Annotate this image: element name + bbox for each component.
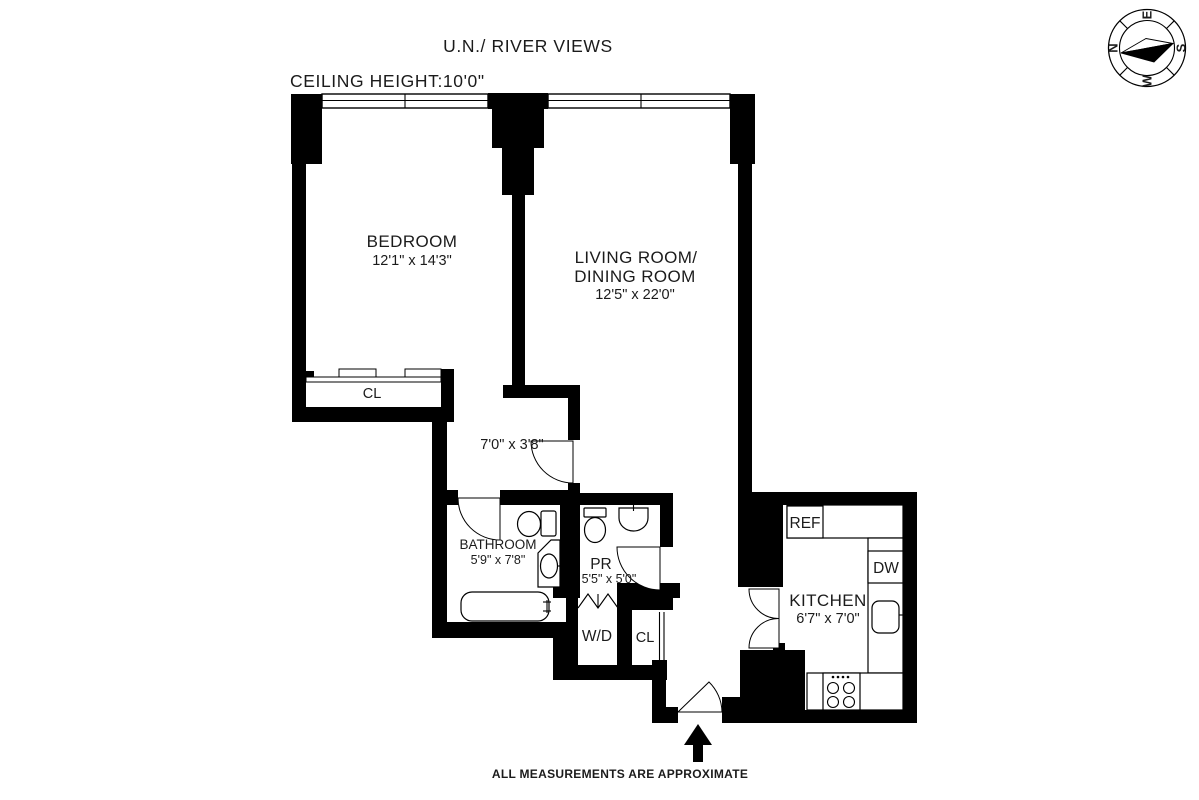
compass-south-label: S xyxy=(1174,43,1189,52)
slider-panel xyxy=(339,369,376,377)
bedroom-dims: 12'1" x 14'3" xyxy=(372,253,452,269)
wall-segment xyxy=(653,598,673,610)
wall-segment xyxy=(730,94,755,164)
wall-segment xyxy=(738,164,752,493)
pr-sink-icon xyxy=(619,508,648,531)
slider-panel xyxy=(405,369,441,377)
wall-segment xyxy=(580,493,673,505)
bathroom-label: BATHROOM xyxy=(460,537,537,552)
bathroom-sink-icon xyxy=(541,554,558,578)
wall-segment xyxy=(752,492,917,505)
wall-segment xyxy=(492,108,544,148)
wall-segment xyxy=(503,385,580,398)
wall-segment xyxy=(441,369,454,409)
compass-east-label: E xyxy=(1140,10,1155,19)
wall-segment xyxy=(568,483,580,505)
wall-segment xyxy=(660,505,673,547)
wall-segment xyxy=(292,164,306,408)
wall-segment xyxy=(565,665,667,680)
arrow-head xyxy=(684,724,712,745)
views-title: U.N./ RIVER VIEWS xyxy=(443,36,613,56)
wall-segment xyxy=(805,710,917,723)
entry-closet-label: CL xyxy=(636,630,655,646)
washer-dryer-bifold-door xyxy=(578,594,618,608)
kitchen-double-door-upper-arc xyxy=(749,589,779,619)
refrigerator-label: REF xyxy=(790,515,821,532)
ceiling-height-label: CEILING HEIGHT:10'0" xyxy=(290,71,485,91)
dishwasher-label: DW xyxy=(873,560,899,577)
toilet-tank-icon xyxy=(541,511,556,536)
wall-segment xyxy=(488,93,548,109)
floor-plan-page: N E S W U.N./ RIVER VIEWS CEILING HEIGHT… xyxy=(0,0,1199,800)
hallway-dims: 7'0" x 3'8" xyxy=(480,437,543,453)
powder-room-fixtures xyxy=(584,504,648,543)
slider-track xyxy=(306,377,441,382)
pr-toilet-tank-icon xyxy=(584,508,606,517)
toilet-bowl-icon xyxy=(518,512,541,537)
wall-segment xyxy=(617,598,632,665)
bathroom-door-arc xyxy=(458,498,500,540)
kitchen-label: KITCHEN xyxy=(789,591,866,610)
living-room-dims: 12'5" x 22'0" xyxy=(595,287,675,303)
floor-plan-drawing: N E S W U.N./ RIVER VIEWS CEILING HEIGHT… xyxy=(0,0,1199,800)
wall-segment xyxy=(566,598,578,638)
kitchen-dims: 6'7" x 7'0" xyxy=(796,611,859,627)
living-room-label-line2: DINING ROOM xyxy=(574,267,696,286)
wall-segment xyxy=(447,490,458,505)
wall-segment xyxy=(652,660,667,680)
entry-arrow-icon xyxy=(684,724,712,762)
stove-knob xyxy=(842,676,845,679)
washer-dryer-label: W/D xyxy=(582,628,612,645)
wall-segment xyxy=(568,398,580,440)
kitchen-double-door-lower-arc xyxy=(749,618,779,648)
stove-knob xyxy=(837,676,840,679)
wall-segment xyxy=(291,94,322,164)
compass-west-label: W xyxy=(1140,74,1155,87)
disclaimer-text: ALL MEASUREMENTS ARE APPROXIMATE xyxy=(492,767,748,781)
bathtub-icon xyxy=(461,592,549,621)
wall-segment xyxy=(738,492,783,587)
wall-segment xyxy=(500,490,568,505)
wall-segment xyxy=(903,505,917,710)
wall-segment xyxy=(652,707,678,723)
arrow-stem xyxy=(693,745,703,762)
bedroom-label: BEDROOM xyxy=(367,232,458,251)
wall-segment xyxy=(512,195,525,386)
kitchen-sink-icon xyxy=(872,601,899,633)
wall-segment xyxy=(740,650,805,723)
powder-room-dims: 5'5" x 5'0" xyxy=(582,572,637,586)
wall-segment xyxy=(722,697,740,723)
powder-room-label: PR xyxy=(590,556,612,573)
wall-segment xyxy=(292,407,454,422)
bedroom-closet-label: CL xyxy=(363,386,382,402)
entry-closet-sliding-door xyxy=(660,612,665,660)
stove-knob xyxy=(847,676,850,679)
wall-segment xyxy=(432,622,566,638)
compass-rose-icon: N E S W xyxy=(1106,10,1189,88)
living-room-label-line1: LIVING ROOM/ xyxy=(575,248,698,267)
entry-door-arc xyxy=(678,682,722,712)
pr-toilet-bowl-icon xyxy=(585,518,606,543)
wall-segment xyxy=(560,505,580,583)
bedroom-closet-sliding-door xyxy=(306,369,441,382)
wall-segment xyxy=(502,148,534,195)
compass-north-label: N xyxy=(1106,43,1121,52)
wall-segment xyxy=(432,420,447,638)
stove-knob xyxy=(832,676,835,679)
bathroom-dims: 5'9" x 7'8" xyxy=(471,553,526,567)
